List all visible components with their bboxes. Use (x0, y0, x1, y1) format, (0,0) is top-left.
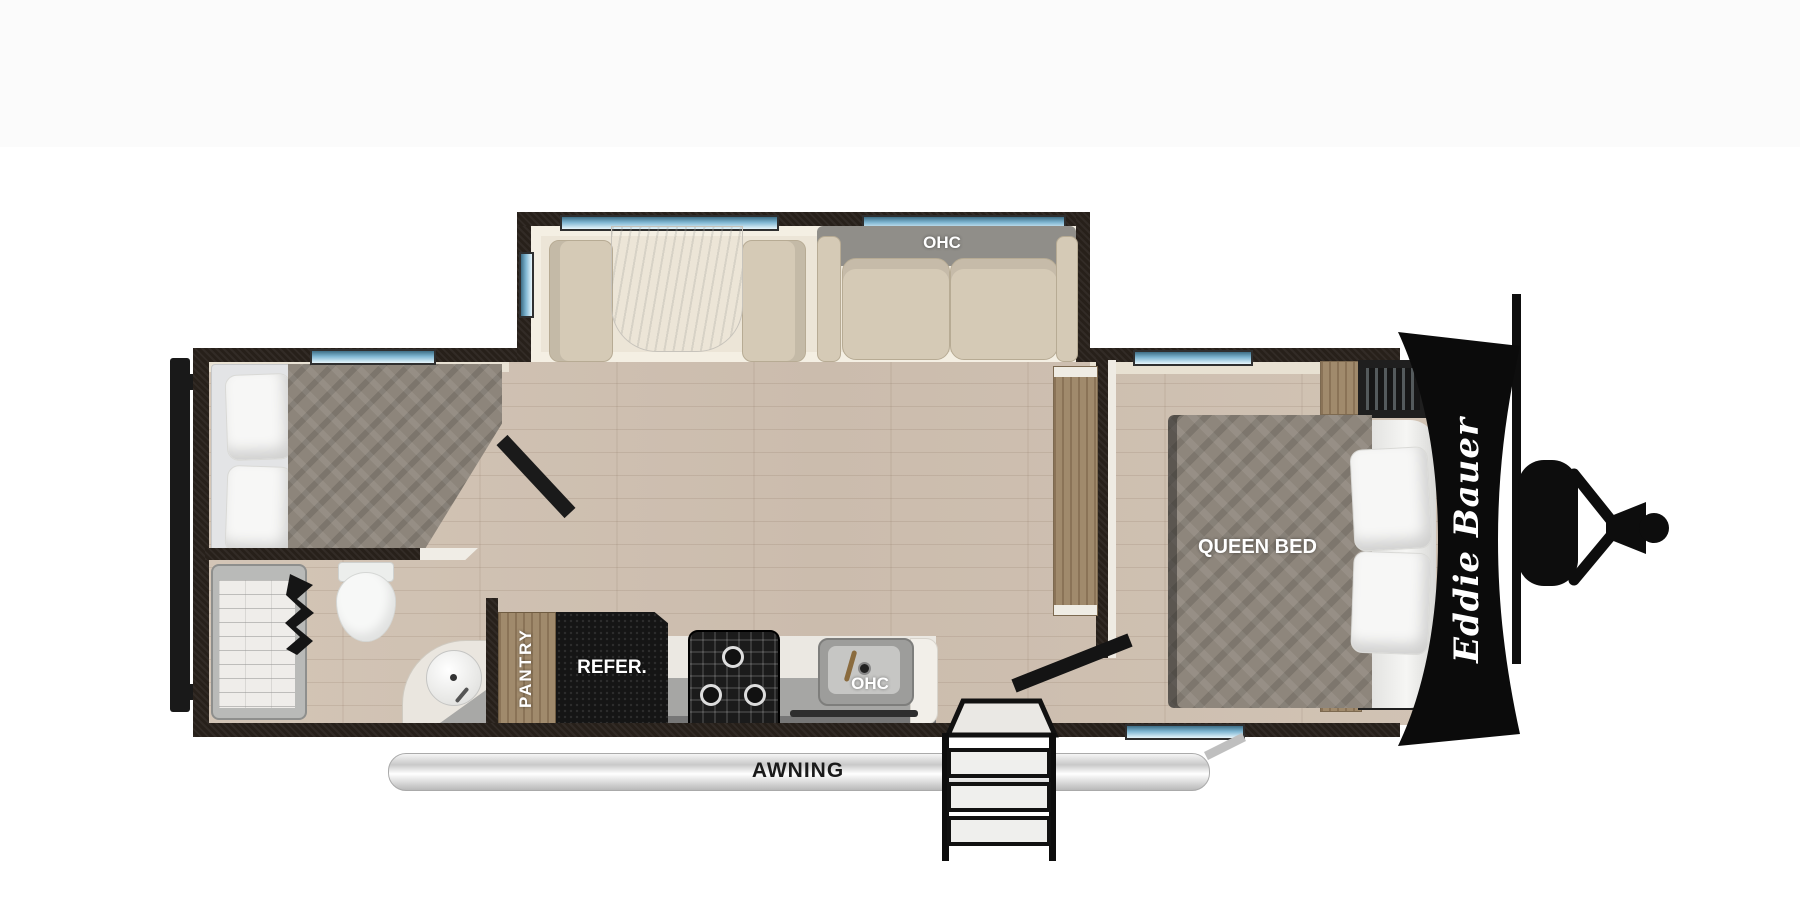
shower-curtain (285, 574, 314, 655)
rv-floorplan: PANTRY REFER. OHC OHC (0, 0, 1800, 900)
entry-door-open (1014, 640, 1130, 686)
propane-tank-cover (1518, 460, 1578, 586)
entry-step-tread-3 (949, 818, 1049, 844)
hitch-ball-knob (1639, 513, 1669, 543)
brand-logo: Eddie Bauer (1447, 416, 1487, 664)
overlay-shapes: Eddie Bauer (0, 0, 1800, 900)
entry-step-tread-1 (949, 750, 1049, 776)
bath-door-open (502, 440, 570, 513)
entry-step-tread-2 (949, 784, 1049, 810)
awning-support-arm (1206, 737, 1244, 756)
entry-step-well (948, 701, 1055, 735)
